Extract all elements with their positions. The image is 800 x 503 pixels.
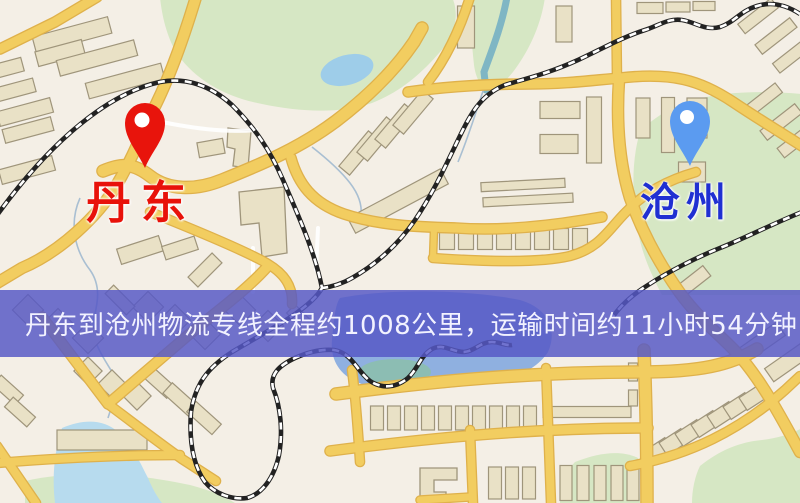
logistics-route-map: 丹东 沧州 丹东到沧州物流专线全程约1008公里，运输时间约11小时54分钟.: [0, 0, 800, 503]
destination-city-label: 沧州: [640, 183, 732, 223]
origin-city-label: 丹东: [86, 180, 196, 225]
map-image: [0, 0, 800, 503]
route-info-text: 丹东到沧州物流专线全程约1008公里，运输时间约11小时54分钟.: [0, 305, 800, 342]
route-info-banner: 丹东到沧州物流专线全程约1008公里，运输时间约11小时54分钟.: [0, 290, 800, 357]
